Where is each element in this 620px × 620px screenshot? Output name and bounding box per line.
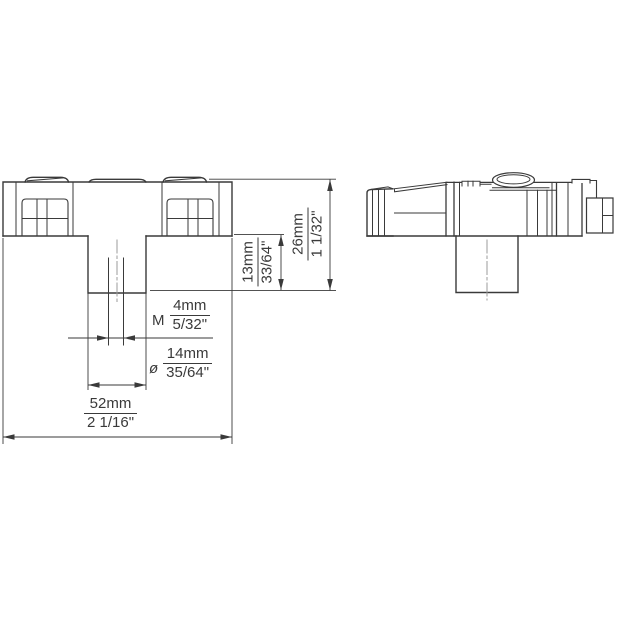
total-height-fraction: 26mm 1 1/32": [291, 207, 326, 260]
dim-total-width-label: 52mm 2 1/16": [84, 396, 137, 431]
hub-height-inch: 33/64": [259, 238, 276, 287]
hub-height-mm: 13mm: [241, 238, 259, 287]
dim-thread-label: M 4mm 5/32": [152, 298, 210, 333]
thread-prefix: M: [152, 313, 165, 333]
hub-diameter-mm: 14mm: [163, 346, 212, 364]
technical-drawing-canvas: M 4mm 5/32" ø 14mm 35/64" 52mm 2 1/16" 1…: [0, 0, 620, 620]
thread-fraction: 4mm 5/32": [170, 298, 211, 333]
total-width-fraction: 52mm 2 1/16": [84, 396, 137, 431]
dim-hub-diameter-label: ø 14mm 35/64": [149, 346, 212, 381]
hub-diameter-fraction: 14mm 35/64": [163, 346, 212, 381]
drawing-linework: [0, 0, 620, 620]
total-width-mm: 52mm: [84, 396, 137, 414]
dim-total-height-label: 26mm 1 1/32": [291, 207, 326, 260]
diameter-symbol: ø: [149, 361, 158, 381]
hub-height-fraction: 13mm 33/64": [241, 238, 276, 287]
thread-inch: 5/32": [170, 316, 211, 333]
total-height-mm: 26mm: [291, 207, 309, 260]
hub-diameter-inch: 35/64": [163, 364, 212, 381]
dim-hub-height-label: 13mm 33/64": [241, 238, 276, 287]
thread-mm: 4mm: [170, 298, 211, 316]
side-view-drawing: [367, 173, 613, 300]
total-width-inch: 2 1/16": [84, 414, 137, 431]
total-height-inch: 1 1/32": [309, 207, 326, 260]
